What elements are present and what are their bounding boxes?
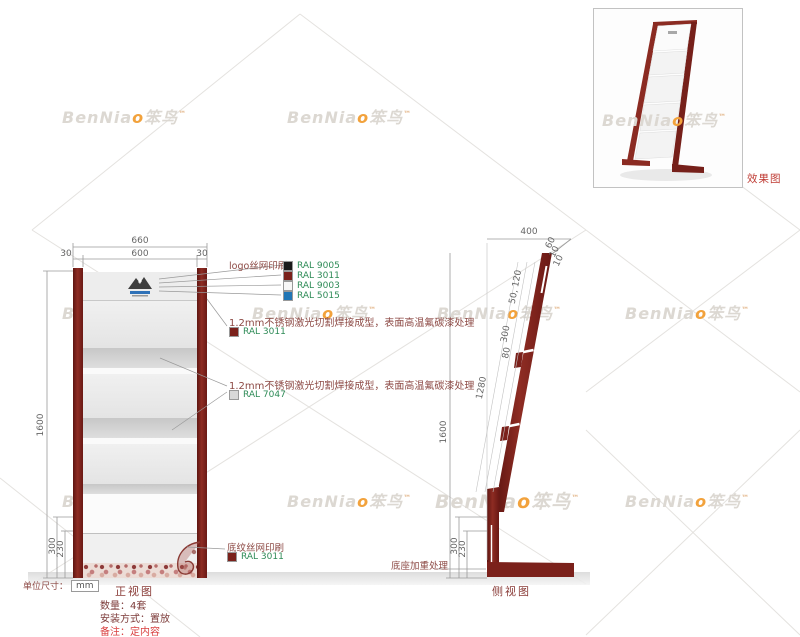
side-view-shapes <box>487 253 574 577</box>
color-chip <box>229 390 239 400</box>
effect-render-box: BenNiao笨鸟™ <box>593 8 743 188</box>
ral-code: RAL 3011 <box>297 271 340 281</box>
base-weight-note: 底座加重处理 <box>391 558 448 572</box>
dim-base-depth: 400 <box>520 227 537 237</box>
ral-row: RAL 7047 <box>229 390 286 400</box>
front-view-dimension-lines <box>43 243 207 578</box>
unit-note: 单位尺寸： mm <box>23 579 99 592</box>
ral-code: RAL 9003 <box>297 281 340 291</box>
side-view-dimension-lines <box>446 239 571 578</box>
ral-row: RAL 3011 <box>283 271 340 281</box>
color-chip <box>283 271 293 281</box>
dim-bracket: 80 <box>501 346 513 359</box>
ral-code: RAL 3011 <box>243 327 286 337</box>
dim-inner-width: 600 <box>131 249 148 259</box>
ral-row: RAL 9005 <box>283 261 340 271</box>
order-remark: 备注：定内容 <box>100 623 160 637</box>
ral-row: RAL 9003 <box>283 281 340 291</box>
ral-code: RAL 7047 <box>243 390 286 400</box>
color-chip <box>227 552 237 562</box>
dim-front-height: 1600 <box>36 414 46 437</box>
effect-caption: 效果图 <box>747 171 782 186</box>
dim-right-margin: 30 <box>196 249 207 259</box>
unit-value: mm <box>71 580 99 592</box>
ral-code: RAL 9005 <box>297 261 340 271</box>
stand-render <box>594 9 742 187</box>
logo-print-label: logo丝网印刷 <box>229 258 287 272</box>
dim-front-pattern-height: 230 <box>56 540 66 557</box>
ral-row: RAL 3011 <box>229 327 286 337</box>
leader-lines <box>159 265 486 569</box>
color-chip <box>283 281 293 291</box>
dim-overall-width: 660 <box>131 236 148 246</box>
ral-code: RAL 5015 <box>297 291 340 301</box>
unit-prefix: 单位尺寸： <box>23 579 68 592</box>
color-chip <box>229 327 239 337</box>
side-view-title: 侧视图 <box>492 583 531 599</box>
ral-row: RAL 5015 <box>283 291 340 301</box>
ral-code: RAL 3011 <box>241 552 284 562</box>
dim-side-height: 1600 <box>439 421 449 444</box>
color-chip <box>283 261 293 271</box>
color-chip <box>283 291 293 301</box>
drawing-sheet: BenNiao笨鸟™ BenNiao笨鸟™ BenNiao笨鸟™ BenNiao… <box>0 0 800 637</box>
ral-row: RAL 3011 <box>227 552 284 562</box>
dim-side-pattern-height: 230 <box>458 540 468 557</box>
dim-left-margin: 30 <box>60 249 71 259</box>
